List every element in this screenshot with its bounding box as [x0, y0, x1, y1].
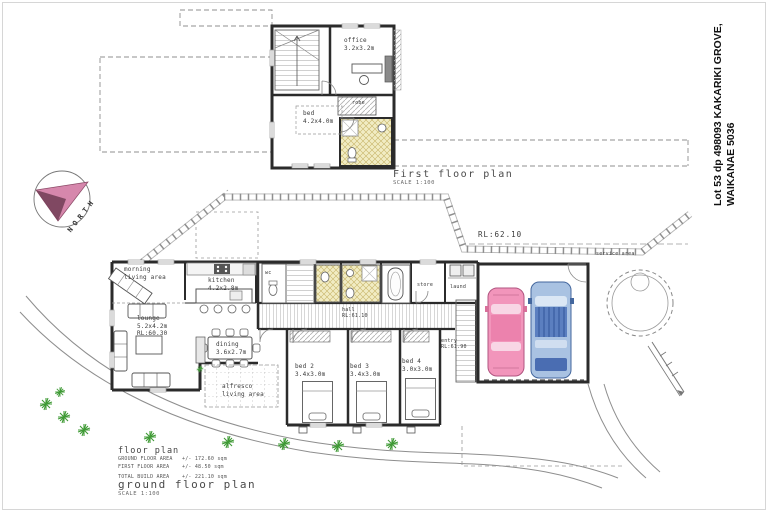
label-robe: robe: [352, 100, 365, 106]
label-bed-first: bed 4.2x4.0m: [303, 110, 334, 125]
blue-car: [528, 282, 574, 378]
first-floor-plan: [270, 24, 401, 168]
first-floor-title: First floor plan SCALE 1:100: [393, 169, 513, 186]
ground-floor-title: ground floor plan SCALE 1:100: [118, 478, 256, 497]
porch-piers: [299, 427, 415, 433]
schedule-row-ground: GROUND FLOOR AREA +/- 172.60 sqm: [118, 456, 227, 464]
schedule-title: floor plan: [118, 446, 227, 456]
label-office: office 3.2x3.2m: [344, 37, 375, 52]
bed4-icon: [406, 379, 436, 420]
first-floor-title-text: First floor plan: [393, 169, 513, 180]
label-laund: laund: [450, 284, 466, 290]
bed3-icon: [357, 382, 387, 423]
label-road-level: RL:62.10: [478, 230, 522, 239]
bed2-icon: [303, 382, 333, 423]
address-line2: WAIKANAE 5036: [725, 10, 738, 206]
lot-address: Lot 53 dp 498093 KAKARIKI GROVE, WAIKANA…: [712, 10, 738, 206]
label-morning-living: morning living area: [124, 266, 166, 281]
label-wc: wc: [265, 270, 271, 276]
site-plan-drawing: [0, 0, 768, 512]
site-ramp-arrow: [648, 342, 684, 396]
area-schedule: floor plan GROUND FLOOR AREA +/- 172.60 …: [118, 446, 227, 482]
label-entry: entry RL:61.90: [441, 338, 467, 351]
bathrooms: [316, 265, 380, 302]
first-floor-scale: SCALE 1:100: [393, 180, 513, 186]
label-lounge: lounge 5.2x4.2m RL:60.30: [137, 315, 168, 338]
label-bed3: bed 3 3.4x3.0m: [350, 363, 381, 378]
floor-plan-sheet: Lot 53 dp 498093 KAKARIKI GROVE, WAIKANA…: [0, 0, 768, 512]
label-service-area: service area: [596, 251, 635, 257]
ground-floor-plan: [109, 260, 588, 433]
pink-car: [485, 288, 527, 376]
schedule-first-label: FIRST FLOOR AREA: [118, 464, 182, 472]
label-alfresco: alfresco living area: [222, 383, 264, 398]
label-bed4: bed 4 3.0x3.0m: [402, 358, 433, 373]
label-dining: dining 3.6x2.7m: [216, 341, 247, 356]
address-line1: Lot 53 dp 498093 KAKARIKI GROVE,: [712, 10, 725, 206]
schedule-ground-value: +/- 172.60 sqm: [182, 456, 227, 464]
label-kitchen: kitchen 4.2x2.8m: [208, 277, 239, 292]
ensuite-first-floor: [340, 118, 392, 166]
label-store: store: [417, 282, 433, 288]
schedule-ground-label: GROUND FLOOR AREA: [118, 456, 182, 464]
ground-floor-title-text: ground floor plan: [118, 478, 256, 491]
label-hall: hall RL:61.10: [342, 307, 368, 320]
bath-room: [382, 265, 410, 303]
stairs-first-floor: [275, 30, 319, 90]
schedule-row-first: FIRST FLOOR AREA +/- 48.50 sqm: [118, 464, 227, 472]
schedule-first-value: +/- 48.50 sqm: [182, 464, 224, 472]
ground-floor-scale: SCALE 1:100: [118, 491, 256, 497]
label-bed2: bed 2 3.4x3.0m: [295, 363, 326, 378]
water-tank: [607, 270, 673, 336]
